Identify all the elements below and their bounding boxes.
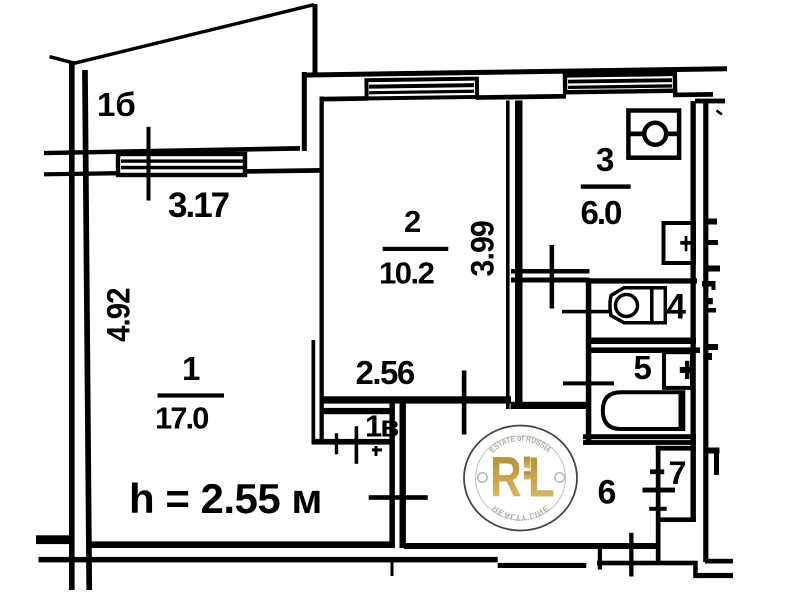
svg-text:1в: 1в (365, 409, 398, 444)
svg-text:6: 6 (598, 474, 617, 512)
svg-text:5: 5 (634, 349, 652, 386)
svg-text:6.0: 6.0 (581, 194, 622, 231)
svg-text:4: 4 (667, 288, 687, 327)
svg-text:4.92: 4.92 (100, 288, 136, 342)
svg-text:17.0: 17.0 (155, 401, 208, 436)
svg-text:3.17: 3.17 (168, 186, 229, 225)
svg-text:7: 7 (669, 455, 687, 491)
svg-text:2: 2 (404, 204, 421, 239)
svg-text:1: 1 (182, 350, 200, 387)
svg-text:3.99: 3.99 (465, 221, 501, 277)
svg-text:h = 2.55 м: h = 2.55 м (129, 475, 322, 522)
svg-text:10.2: 10.2 (379, 256, 434, 291)
svg-text:2.56: 2.56 (356, 354, 415, 391)
svg-text:3: 3 (596, 141, 614, 178)
svg-text:1б: 1б (97, 86, 136, 123)
